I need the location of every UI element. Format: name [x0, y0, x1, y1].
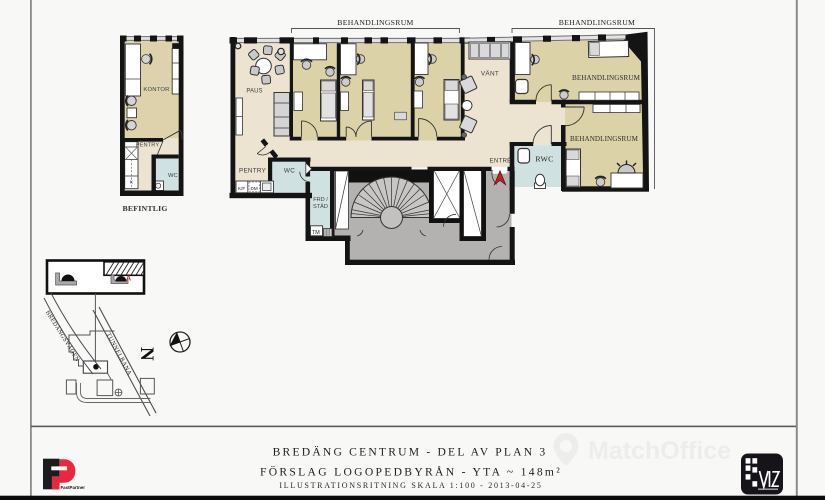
svg-text:RWC: RWC	[535, 155, 553, 164]
svg-text:N: N	[136, 347, 157, 361]
svg-text:FastPartner: FastPartner	[61, 485, 86, 490]
svg-text:VÄNT: VÄNT	[481, 70, 499, 78]
svg-text:BEHANDLINGSRUM: BEHANDLINGSRUM	[572, 74, 641, 82]
svg-text:BEHANDLINGSRUM: BEHANDLINGSRUM	[559, 18, 635, 27]
svg-text:STÄD: STÄD	[313, 203, 328, 210]
svg-text:BEHANDLINGSRUM: BEHANDLINGSRUM	[337, 18, 413, 27]
svg-text:BREDÄNG CENTRUM - DEL AV PLAN: BREDÄNG CENTRUM - DEL AV PLAN 3	[273, 445, 548, 459]
svg-text:PAUS: PAUS	[246, 88, 262, 94]
svg-text:FRD /: FRD /	[313, 197, 328, 203]
svg-text:ENTRÉ: ENTRÉ	[490, 158, 512, 165]
svg-text:BEHANDLINGSRUM: BEHANDLINGSRUM	[570, 135, 639, 143]
svg-text:FÖRSLAG LOGOPEDBYRÅN - YTA ~ 1: FÖRSLAG LOGOPEDBYRÅN - YTA ~ 148m²	[260, 465, 562, 479]
svg-text:A: A	[126, 276, 131, 283]
svg-text:MatchOffice: MatchOffice	[588, 437, 731, 465]
svg-text:WC: WC	[168, 173, 178, 179]
svg-text:K/F: K/F	[238, 186, 245, 191]
svg-text:KONTOR: KONTOR	[143, 87, 169, 93]
svg-text:TM: TM	[312, 230, 320, 236]
svg-text:DM: DM	[251, 186, 258, 191]
svg-text:PENTRY: PENTRY	[136, 143, 160, 149]
svg-text:WC: WC	[284, 168, 295, 175]
svg-text:BEFINTLIG: BEFINTLIG	[123, 204, 168, 213]
svg-text:ILLUSTRATIONSRITNING SKALA 1:1: ILLUSTRATIONSRITNING SKALA 1:100 - 2013-…	[279, 481, 542, 490]
svg-text:PENTRY: PENTRY	[239, 168, 267, 175]
